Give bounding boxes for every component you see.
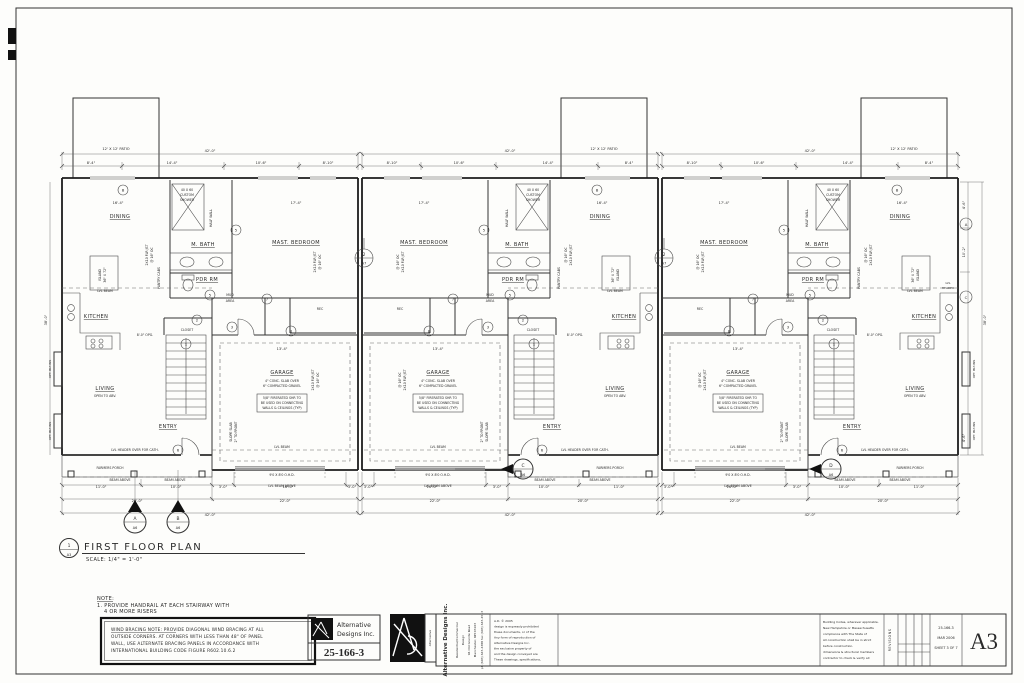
plan-label-2: 3'-0" (219, 485, 228, 489)
plan-label-joist2: @ 16" OC (150, 246, 154, 262)
plan-label-kitchen: KITCHEN (912, 314, 936, 320)
plan-label-1: 22'-0" (430, 499, 441, 503)
plan-label-slab2: 6" COMPACTED GRAVEL (419, 384, 457, 388)
plan-label-entry: ENTRY (843, 424, 862, 430)
drawing-title-block: 1 A3 FIRST FLOOR PLAN SCALE: 1/4" = 1'-0… (60, 539, 306, 564)
end-wall-builtins: OPT. BLT-INS OPT. BLT-INS OPT. BLT-INS O… (48, 352, 976, 448)
plan-label-bed_w: 17'-4" (719, 201, 730, 205)
plan-label-living_sub: OPEN TO ABV. (604, 394, 627, 398)
plan-label-1: 22'-0" (730, 499, 741, 503)
plan-label-halfwall: HALF WALL (209, 209, 213, 227)
plan-scale: SCALE: 1/4" = 1'-0" (86, 557, 142, 563)
plan-label-entry: ENTRY (543, 424, 562, 430)
optblt-label: OPT. BLT-INS (972, 360, 976, 379)
plan-label-1: 14'-4" (167, 161, 178, 165)
plan-label-pantry: PANTRY CABS (557, 267, 561, 289)
plan-label-living: LIVING (95, 386, 114, 392)
copyright-line: these documents, or of the (494, 630, 535, 634)
plan-label-opg: 8'-0" OPG. (867, 333, 883, 337)
plan-label-4: 3'-0" (364, 485, 373, 489)
plan-label-top_total: 42'-0" (505, 149, 516, 153)
section-c: C A6 (455, 459, 533, 479)
plan-label-din_w: 16'-4" (113, 201, 124, 205)
revisions-label: REVISIONS (888, 629, 892, 652)
tag-t6: 6 (541, 448, 544, 453)
plan-label-lvlbeam: LVL BEAM (730, 445, 746, 449)
plan-label-mud1: MUD (226, 293, 234, 297)
tag-t7: 7 (752, 297, 755, 302)
plan-label-fire1: 5/8" FIRERATED SHR TO (719, 396, 758, 400)
sheetinfo-sheet: SHEET 3 OF 7 (934, 646, 957, 650)
copyright-line: and the design conveyed are (494, 652, 538, 656)
plan-label-top_total: 42'-0" (205, 149, 216, 153)
plan-label-dining: DINING (590, 214, 611, 220)
plan-label-lvlbeam: LVL BEAM (430, 445, 446, 449)
tag-t7: 7 (452, 297, 455, 302)
plan-label-closet: CLOSET (181, 328, 193, 332)
copyright-line: Alternative Designs Inc. (494, 641, 530, 645)
codes-line: before construction. (823, 644, 853, 648)
plan-label-master: MAST. BEDROOM (700, 240, 748, 246)
tag-t6: 6 (177, 448, 180, 453)
plan-label-joist2: @ 16" OC (564, 246, 568, 262)
codes-line: New Hampshire or Massachusetts (823, 626, 874, 630)
plan-label-mud1: MUD (786, 293, 794, 297)
plan-label-fire2: BE USED ON CONNECTING (261, 401, 304, 405)
plan-label-shower3: SHOWER (180, 198, 195, 202)
codes-line: compliance with The State of (823, 632, 868, 636)
plan-label-slab2: 6" COMPACTED GRAVEL (263, 384, 301, 388)
plan-label-pantry: PANTRY CABS (857, 267, 861, 289)
plan-label-joist1: 2X10 FLR JST (569, 244, 573, 265)
title-block-strip: Alternative Designs Inc. Residential/Com… (436, 604, 1006, 677)
section-letter: C (521, 463, 524, 469)
plan-label-0: 11'-0" (96, 485, 107, 489)
plan-label-fire3: WALLS & CEILINGS (TYP) (418, 406, 457, 410)
dim-right: 4'-6" (962, 200, 966, 209)
plan-label-fire3: WALLS & CEILINGS (TYP) (718, 406, 757, 410)
plan-label-joist1: 2X10 FLR JST (401, 251, 405, 272)
plan-label-halfwall: HALF WALL (505, 209, 509, 227)
plan-label-lvlbeam: LVL BEAM (607, 289, 623, 293)
plan-label-beamabove: BEAM ABOVE (889, 478, 910, 482)
plan-label-shower3: SHOWER (526, 198, 541, 202)
plan-label-0: 20'-0" (132, 499, 143, 503)
plan-label-porch: FARMERS PORCH (596, 466, 624, 470)
plan-label-living_sub: OPEN TO ABV. (94, 394, 117, 398)
logo-name-2: Designs Inc. (337, 631, 375, 638)
note-line-2: 4 OR MORE RISERS (104, 609, 157, 615)
plan-label-pdr: PDR RM (196, 277, 218, 283)
plan-label-garage: GARAGE (270, 370, 293, 376)
plan-label-garage: GARAGE (726, 370, 749, 376)
plan-label-beamabove: BEAM ABOVE (164, 478, 185, 482)
plan-label-slab1: 4" CONC. SLAB OVER (421, 379, 456, 383)
plan-label-shower1: 40 X 60 (527, 188, 539, 192)
codes-line: All construction shall be in strict (823, 638, 872, 642)
plan-label-beamabove: BEAM ABOVE (589, 478, 610, 482)
general-notes: NOTE: 1. PROVIDE HANDRAIL AT EACH STAIRW… (97, 596, 229, 615)
plan-label-closet: CLOSET (827, 328, 839, 332)
plan-label-mud1: MUD (486, 293, 494, 297)
lvl-header-label: HEADER (942, 286, 955, 290)
plan-label-1: 14'-4" (543, 161, 554, 165)
section-sheet: A6 (176, 526, 180, 530)
plan-label-3: 16'-0" (727, 485, 738, 489)
unit-3-linework (660, 98, 960, 515)
plan-label-lvlbeam: LVL BEAM (907, 289, 923, 293)
plan-label-slope2: 2" TO FRONT (780, 422, 784, 443)
tag-t1: 1 (533, 342, 536, 347)
plan-label-mud2: AREA (786, 299, 795, 303)
wind-bracing-note: WIND BRACING NOTE: PROVIDE DIAGONAL WIND… (101, 618, 315, 664)
tag-t3: 3 (231, 325, 234, 330)
plan-label-shower2: CUSTOM (826, 193, 840, 197)
plan-label-slope2: 2" TO FRONT (480, 422, 484, 443)
copyright-line: These drawings, specifications, (493, 658, 541, 662)
plan-label-porch: FARMERS PORCH (896, 466, 924, 470)
tag-t6: 6 (841, 448, 844, 453)
codes-line: Building Codes, wherever applicable. (823, 620, 879, 624)
plan-label-slope1: SLOPE SLAB (485, 422, 489, 441)
plan-label-joist1: 2X10 FLR JST (145, 244, 149, 265)
plan-label-rec: REC (697, 307, 704, 311)
tag-t5: 5 (783, 228, 786, 233)
plan-label-beamabove: BEAM ABOVE (534, 478, 555, 482)
plan-label-shower3: SHOWER (826, 198, 841, 202)
plan-label-0: 8'-4" (625, 161, 634, 165)
plan-label-slab1: 4" CONC. SLAB OVER (721, 379, 756, 383)
plan-label-lvlbeam: LVL BEAM (274, 445, 290, 449)
plan-label-fire2: BE USED ON CONNECTING (717, 401, 760, 405)
plan-label-fire3: WALLS & CEILINGS (TYP) (262, 406, 301, 410)
plan-label-dining: DINING (890, 214, 911, 220)
codes-line: dimensions & structural members (823, 650, 874, 654)
tag-wB: B (122, 188, 125, 193)
plan-label-3: 8'-10" (687, 161, 698, 165)
plan-label-2: 3'-0" (493, 485, 502, 489)
plan-label-joist2: @ 16" OC (698, 371, 702, 387)
plan-label-joist1: 2X10 FLR JST (403, 369, 407, 390)
plan-label-mud2: AREA (486, 299, 495, 303)
tag-t1: 1 (833, 342, 836, 347)
plan-label-ohd: 9'0 X 8'0 O.H.D. (269, 473, 294, 477)
plan-label-kitchen: KITCHEN (612, 314, 636, 320)
binding-mark (8, 50, 16, 60)
plan-label-entry: ENTRY (159, 424, 178, 430)
dim-depth: 38'-0" (983, 314, 987, 325)
plan-label-2: 10'-6" (754, 161, 765, 165)
plan-label-island2: 36" X 72" (911, 267, 915, 283)
company-logo-large: Alternative (390, 614, 436, 662)
plan-label-joist2: @ 16" OC (398, 371, 402, 387)
plan-label-ohd: 9'0 X 8'0 O.H.D. (725, 473, 750, 477)
plan-label-pantry: PANTRY CABS (157, 267, 161, 289)
title-ref-sheet: A3 (67, 553, 71, 557)
plan-label-total: 42'-0" (205, 513, 216, 517)
plan-label-2: 10'-6" (454, 161, 465, 165)
plan-label-ohd: 9'0 X 8'0 O.H.D. (425, 473, 450, 477)
plan-label-din_w: 16'-4" (897, 201, 908, 205)
plan-label-shower2: CUSTOM (526, 193, 540, 197)
plan-label-halfwall: HALF WALL (805, 209, 809, 227)
optblt-label: OPT. BLT-INS (972, 422, 976, 441)
detail-num: 2 (363, 252, 366, 258)
section-sheet: A6 (829, 473, 833, 477)
plan-label-3: 16'-0" (427, 485, 438, 489)
plan-label-mbath: M. BATH (805, 242, 829, 248)
plan-label-porch: FARMERS PORCH (96, 466, 124, 470)
plan-label-fire1: 5/8" FIRERATED SHR TO (419, 396, 458, 400)
plan-label-opg: 8'-0" OPG. (137, 333, 153, 337)
title-ref-num: 1 (68, 543, 71, 549)
plan-label-1: 10'-0" (171, 485, 182, 489)
plan-label-joist2: @ 16" OC (396, 253, 400, 269)
plan-label-island1: ISLAND (98, 269, 102, 281)
plan-label-bed_w: 17'-4" (419, 201, 430, 205)
section-d: D A6 (765, 459, 841, 479)
job-number-logo: Alternative Designs Inc. 25-166-3 (308, 615, 380, 660)
plan-label-0: 8'-4" (925, 161, 934, 165)
detail-sheet: A7 (362, 262, 366, 266)
plan-label-master: MAST. BEDROOM (272, 240, 320, 246)
copyright-line: the exclusive property of (494, 647, 532, 651)
plan-label-2: 3'-0" (793, 485, 802, 489)
plan-label-master: MAST. BEDROOM (400, 240, 448, 246)
plan-label-joist2: @ 16" OC (318, 253, 322, 269)
plan-label-header_cath: LVL HEADER OVER FOR CATH. (861, 448, 909, 452)
plan-label-1: 14'-4" (843, 161, 854, 165)
plan-label-patio_label: 12' X 12' PATIO (890, 147, 917, 151)
floor-plan-drawing: OPT. BLT-INS OPT. BLT-INS OPT. BLT-INS O… (0, 0, 1024, 683)
plan-label-living: LIVING (605, 386, 624, 392)
plan-label-0: 8'-4" (87, 161, 96, 165)
section-letter: B (176, 516, 179, 522)
plan-label-rec: REC (397, 307, 404, 311)
plan-label-1: 22'-0" (280, 499, 291, 503)
plan-label-kitchen: KITCHEN (84, 314, 108, 320)
company-line: Residential/Commercial (455, 622, 459, 658)
section-sheet: A6 (521, 473, 525, 477)
plan-label-din_w: 16'-4" (597, 201, 608, 205)
company-line: Manchester, NH 03103 (473, 623, 477, 658)
detail-sheet: A7 (662, 262, 666, 266)
plan-label-slab2: 6" COMPACTED GRAVEL (719, 384, 757, 388)
company-name: Alternative Designs Inc. (443, 604, 449, 677)
wind-note-line-2: OUTSIDE CORNERS. AT CORNERS WITH LESS TH… (111, 634, 263, 640)
tag-t3: 3 (487, 325, 490, 330)
plan-label-island1: ISLAND (616, 269, 620, 281)
plan-label-mbath: M. BATH (191, 242, 215, 248)
plan-label-2: 10'-6" (256, 161, 267, 165)
note-title: NOTE: (97, 596, 114, 602)
plan-label-slope1: SLOPE SLAB (785, 422, 789, 441)
plan-label-garage: GARAGE (426, 370, 449, 376)
plan-title: FIRST FLOOR PLAN (84, 542, 202, 553)
company-line: 94 Old Granite Road (467, 625, 471, 656)
unit-1-linework (60, 98, 360, 515)
plan-label-patio_label: 12' X 12' PATIO (590, 147, 617, 151)
plan-label-slab1: 4" CONC. SLAB OVER (265, 379, 300, 383)
plan-label-shower2: CUSTOM (180, 193, 194, 197)
plan-label-island2: 36" X 72" (103, 267, 107, 283)
plan-label-3: 8'-10" (387, 161, 398, 165)
plan-label-joist2: @ 16" OC (316, 371, 320, 387)
plan-label-0: 11'-0" (614, 485, 625, 489)
tag-t5: 5 (509, 293, 512, 298)
plan-label-4: 3'-0" (348, 485, 357, 489)
plan-label-joist1: 2X10 FLR JST (703, 369, 707, 390)
sheetinfo-job: 25-166-3 (938, 626, 953, 630)
plan-label-1: 10'-0" (839, 485, 850, 489)
plan-label-island1: ISLAND (916, 269, 920, 281)
sheetinfo-date: MAR 2006 (937, 636, 954, 640)
job-number: 25-166-3 (324, 647, 365, 659)
tag-t5: 5 (235, 228, 238, 233)
window-tag-a: A (965, 222, 968, 227)
plan-label-header_cath: LVL HEADER OVER FOR CATH. (561, 448, 609, 452)
plan-label-top_total: 42'-0" (805, 149, 816, 153)
sheet-id: A3 (970, 629, 998, 654)
plan-label-joist1: 2X10 FLR JST (313, 251, 317, 272)
plan-label-gar_w: 13'-4" (733, 347, 744, 351)
tag-t7: 7 (266, 297, 269, 302)
tag-t5: 5 (809, 293, 812, 298)
plan-label-shower1: 40 X 60 (827, 188, 839, 192)
tag-t5: 5 (209, 293, 212, 298)
plan-label-beamabove: BEAM ABOVE (834, 478, 855, 482)
plan-label-0: 11'-0" (914, 485, 925, 489)
wind-note-line-4: INTERNATIONAL BUILDING CODE FIGURE R602.… (111, 648, 236, 654)
plan-label-4: 3'-0" (664, 485, 673, 489)
plan-label-opg: 8'-0" OPG. (567, 333, 583, 337)
plan-label-slope2: 2" TO FRONT (234, 422, 238, 443)
plan-label-closet: CLOSET (527, 328, 539, 332)
copyright-line: A.D. © 2005 (494, 619, 513, 623)
plan-label-patio_label: 12' X 12' PATIO (102, 147, 129, 151)
plan-label-fire2: BE USED ON CONNECTING (417, 401, 460, 405)
plan-label-joist2: @ 16" OC (864, 246, 868, 262)
plan-label-1: 10'-0" (539, 485, 550, 489)
drawing-sheet: OPT. BLT-INS OPT. BLT-INS OPT. BLT-INS O… (0, 0, 1024, 683)
unit-2-linework (360, 98, 660, 515)
plan-label-beamabove: BEAM ABOVE (109, 478, 130, 482)
dim-right: 4'-6" (962, 433, 966, 442)
copyright-line: Any form of reproduction of (494, 636, 536, 640)
plan-label-gar_w: 13'-4" (277, 347, 288, 351)
dim-depth: 38'-0" (44, 314, 48, 325)
plan-label-living_sub: OPEN TO ABV. (904, 394, 927, 398)
tag-t5: 5 (483, 228, 486, 233)
plan-label-bed_w: 17'-4" (291, 201, 302, 205)
plan-label-joist1: 2X10 FLR JST (701, 251, 705, 272)
company-line: Design (461, 635, 465, 645)
codes-line: contractor to check & verify all (823, 656, 870, 660)
section-letter: A (133, 516, 136, 522)
plan-label-0: 20'-0" (878, 499, 889, 503)
plan-label-3: 16'-0" (283, 485, 294, 489)
tag-wB: B (896, 188, 899, 193)
dim-right: 10'-2" (962, 246, 966, 257)
tag-t1: 1 (185, 342, 188, 347)
binding-mark (8, 28, 16, 44)
section-letter: D (829, 463, 833, 469)
plan-label-3: 8'-10" (323, 161, 334, 165)
copyright-line: design is expressly prohibited (494, 625, 539, 629)
plan-label-joist1: 2X10 FLR JST (869, 244, 873, 265)
plan-label-fire1: 5/8" FIRERATED SHR TO (263, 396, 302, 400)
logo-rotated-text: Alternative (428, 630, 432, 647)
plan-label-0: 20'-0" (578, 499, 589, 503)
plan-label-header_cath: LVL HEADER OVER FOR CATH. (111, 448, 159, 452)
plan-label-dining: DINING (110, 214, 131, 220)
plan-label-joist1: 2X10 FLR JST (311, 369, 315, 390)
plan-label-total: 42'-0" (505, 513, 516, 517)
plan-label-mbath: M. BATH (505, 242, 529, 248)
plan-label-pdr: PDR RM (802, 277, 824, 283)
wind-note-line-1: WIND BRACING NOTE: PROVIDE DIAGONAL WIND… (111, 627, 264, 633)
plan-label-island2: 36" X 72" (611, 267, 615, 283)
plan-label-joist2: @ 16" OC (696, 253, 700, 269)
plan-label-pdr: PDR RM (502, 277, 524, 283)
plan-label-lvlbeam: LVL BEAM (97, 289, 113, 293)
plan-label-gar_w: 13'-4" (433, 347, 444, 351)
lvl-header-label: LVL (945, 281, 950, 285)
plan-label-slope1: SLOPE SLAB (229, 422, 233, 441)
logo-name-1: Alternative (337, 622, 371, 629)
section-sheet: A6 (133, 526, 137, 530)
company-line: ph (603) 645-4388 fax (603) 645-4513 (480, 611, 484, 669)
wind-note-line-3: WALL, USE ALTERNATE BRACING PANELS IN AC… (111, 641, 259, 647)
plan-label-shower1: 40 X 60 (181, 188, 193, 192)
plan-label-total: 42'-0" (805, 513, 816, 517)
plan-label-living: LIVING (905, 386, 924, 392)
plan-label-rec: REC (317, 307, 324, 311)
tag-t3: 3 (787, 325, 790, 330)
tag-wB: B (596, 188, 599, 193)
window-tag-c: C (965, 295, 968, 300)
plan-label-mud2: AREA (226, 299, 235, 303)
detail-num: 2 (663, 252, 666, 258)
